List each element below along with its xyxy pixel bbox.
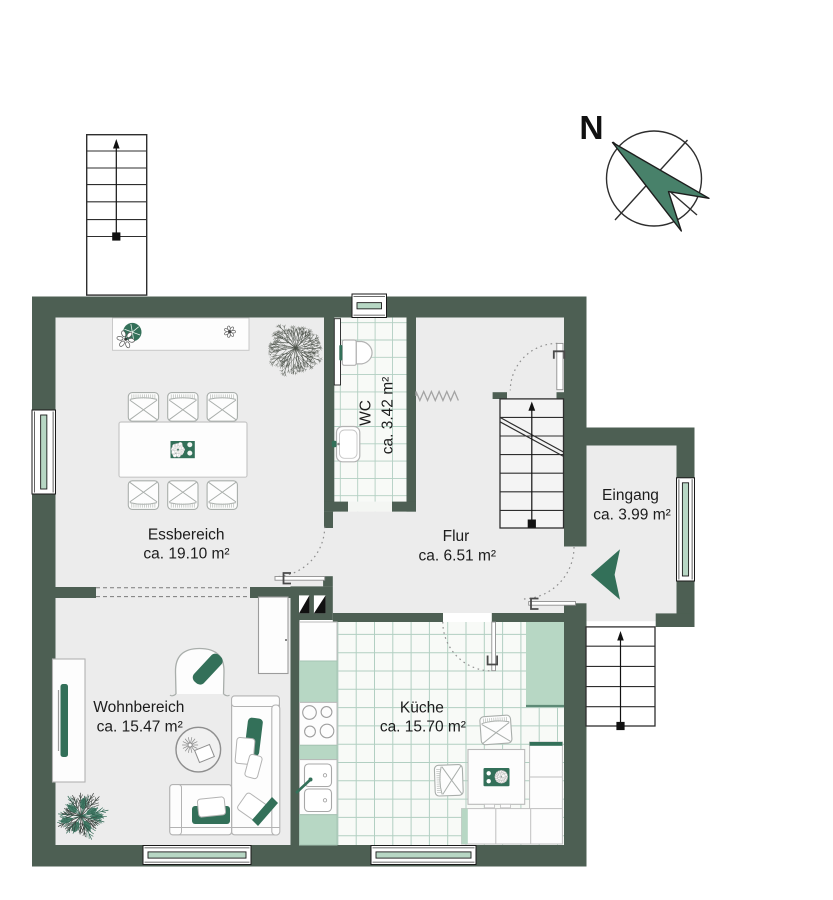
svg-text:N: N [579, 110, 603, 147]
svg-text:ca. 15.47 m²: ca. 15.47 m² [97, 719, 183, 736]
svg-text:Essbereich: Essbereich [148, 527, 225, 544]
svg-text:ca. 3.42 m²: ca. 3.42 m² [380, 377, 397, 455]
svg-text:Flur: Flur [443, 528, 470, 545]
svg-text:Wohnbereich: Wohnbereich [93, 699, 184, 716]
svg-text:Eingang: Eingang [602, 487, 659, 504]
svg-text:ca. 15.70 m²: ca. 15.70 m² [380, 719, 466, 736]
svg-text:Küche: Küche [400, 700, 444, 717]
svg-text:WC: WC [358, 400, 375, 426]
svg-text:ca. 3.99 m²: ca. 3.99 m² [593, 507, 671, 524]
svg-text:ca. 19.10 m²: ca. 19.10 m² [143, 546, 229, 563]
svg-text:ca. 6.51 m²: ca. 6.51 m² [419, 547, 497, 564]
